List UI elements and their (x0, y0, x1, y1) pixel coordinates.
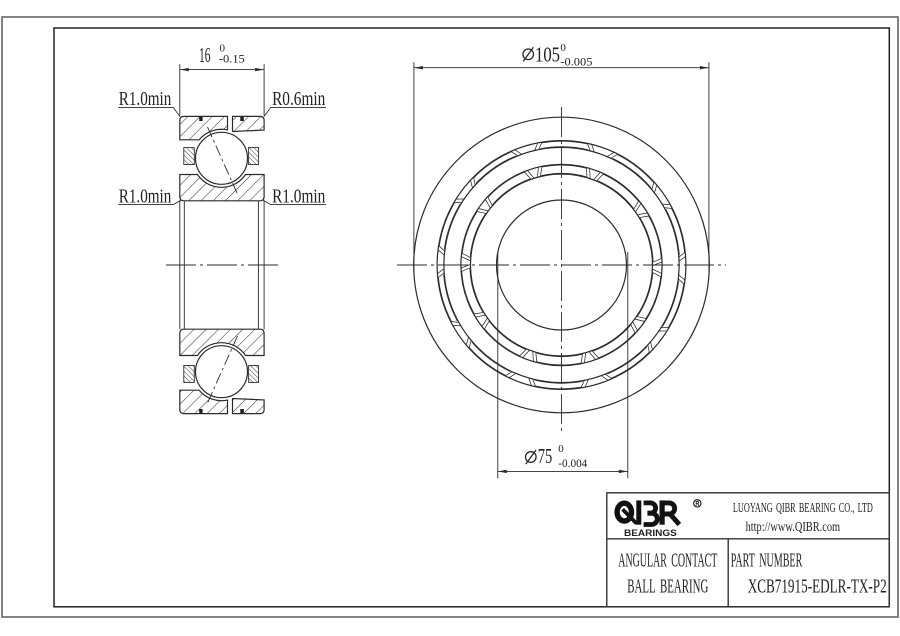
svg-text:ANGULAR CONTACT: ANGULAR CONTACT (618, 550, 717, 572)
svg-text:16: 16 (199, 43, 211, 67)
svg-text:75: 75 (538, 444, 553, 468)
svg-text:PART NUMBER: PART NUMBER (731, 550, 803, 572)
svg-text:R1.0min: R1.0min (119, 185, 172, 207)
svg-text:http://www.QIBR.com: http://www.QIBR.com (746, 519, 841, 534)
svg-text:0: 0 (560, 43, 566, 54)
svg-text:-0.15: -0.15 (219, 52, 245, 66)
svg-text:XCB71915-EDLR-TX-P2: XCB71915-EDLR-TX-P2 (748, 576, 887, 598)
svg-text:0: 0 (558, 444, 564, 455)
svg-text:-0.005: -0.005 (560, 55, 592, 69)
svg-text:R1.0min: R1.0min (272, 185, 325, 207)
svg-text:BALL BEARING: BALL BEARING (627, 576, 708, 598)
svg-text:BEARINGS: BEARINGS (624, 528, 677, 538)
svg-text:R0.6min: R0.6min (272, 88, 325, 110)
svg-text:-0.004: -0.004 (558, 456, 587, 470)
svg-text:LUOYANG QIBR BEARING CO., LTD: LUOYANG QIBR BEARING CO., LTD (733, 501, 873, 516)
svg-text:R: R (695, 501, 699, 508)
svg-text:105: 105 (535, 43, 560, 67)
svg-text:R1.0min: R1.0min (119, 88, 172, 110)
